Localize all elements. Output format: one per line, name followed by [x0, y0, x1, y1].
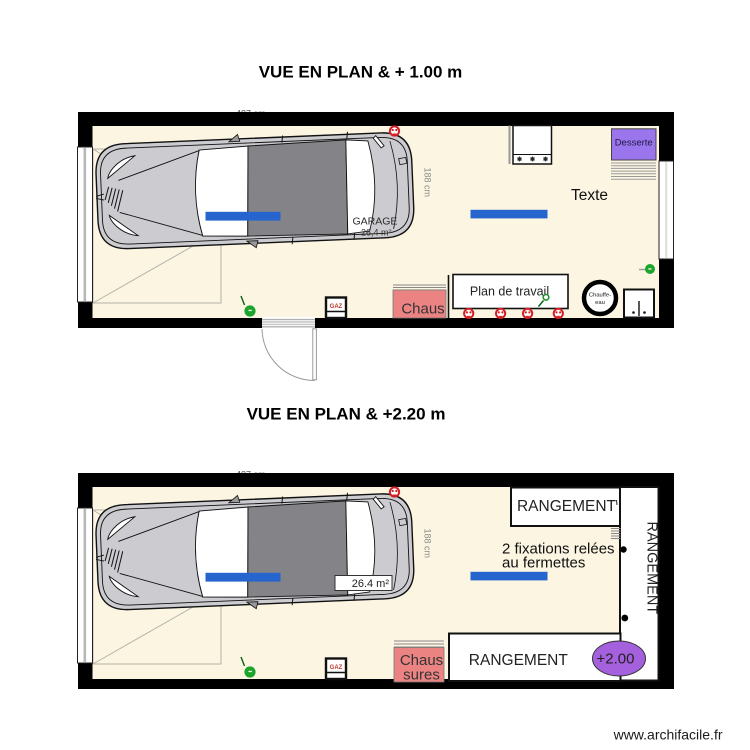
svg-text:GARAGE: GARAGE — [353, 216, 398, 228]
svg-text:188 cm: 188 cm — [423, 168, 433, 198]
svg-text:+2.00: +2.00 — [597, 651, 635, 668]
svg-text:Chauffe-: Chauffe- — [589, 293, 611, 299]
svg-text:26.4 m²: 26.4 m² — [352, 578, 390, 590]
svg-text:188 cm: 188 cm — [423, 529, 433, 559]
svg-text:GAZ: GAZ — [330, 304, 343, 310]
svg-text:GAZ: GAZ — [330, 665, 343, 671]
svg-text:RANGEMENT: RANGEMENT — [469, 652, 569, 669]
svg-text:26,4 m²: 26,4 m² — [361, 228, 392, 238]
svg-text:Desserte: Desserte — [615, 138, 653, 149]
svg-text:www.archifacile.fr: www.archifacile.fr — [613, 727, 723, 743]
svg-text:Chaus: Chaus — [401, 301, 444, 318]
svg-text:VUE EN PLAN & + 1.00 m: VUE EN PLAN & + 1.00 m — [259, 63, 463, 82]
svg-text:RANGEMENT: RANGEMENT — [644, 522, 660, 615]
svg-text:Texte: Texte — [571, 187, 608, 204]
svg-text:au fermettes: au fermettes — [502, 555, 585, 572]
svg-text:sures: sures — [403, 667, 440, 684]
svg-text:VUE EN PLAN & +2.20 m: VUE EN PLAN & +2.20 m — [247, 405, 446, 424]
svg-text:eau: eau — [595, 300, 605, 306]
svg-text:RANGEMENT: RANGEMENT — [517, 498, 617, 515]
svg-text:Plan de travail: Plan de travail — [470, 285, 549, 299]
